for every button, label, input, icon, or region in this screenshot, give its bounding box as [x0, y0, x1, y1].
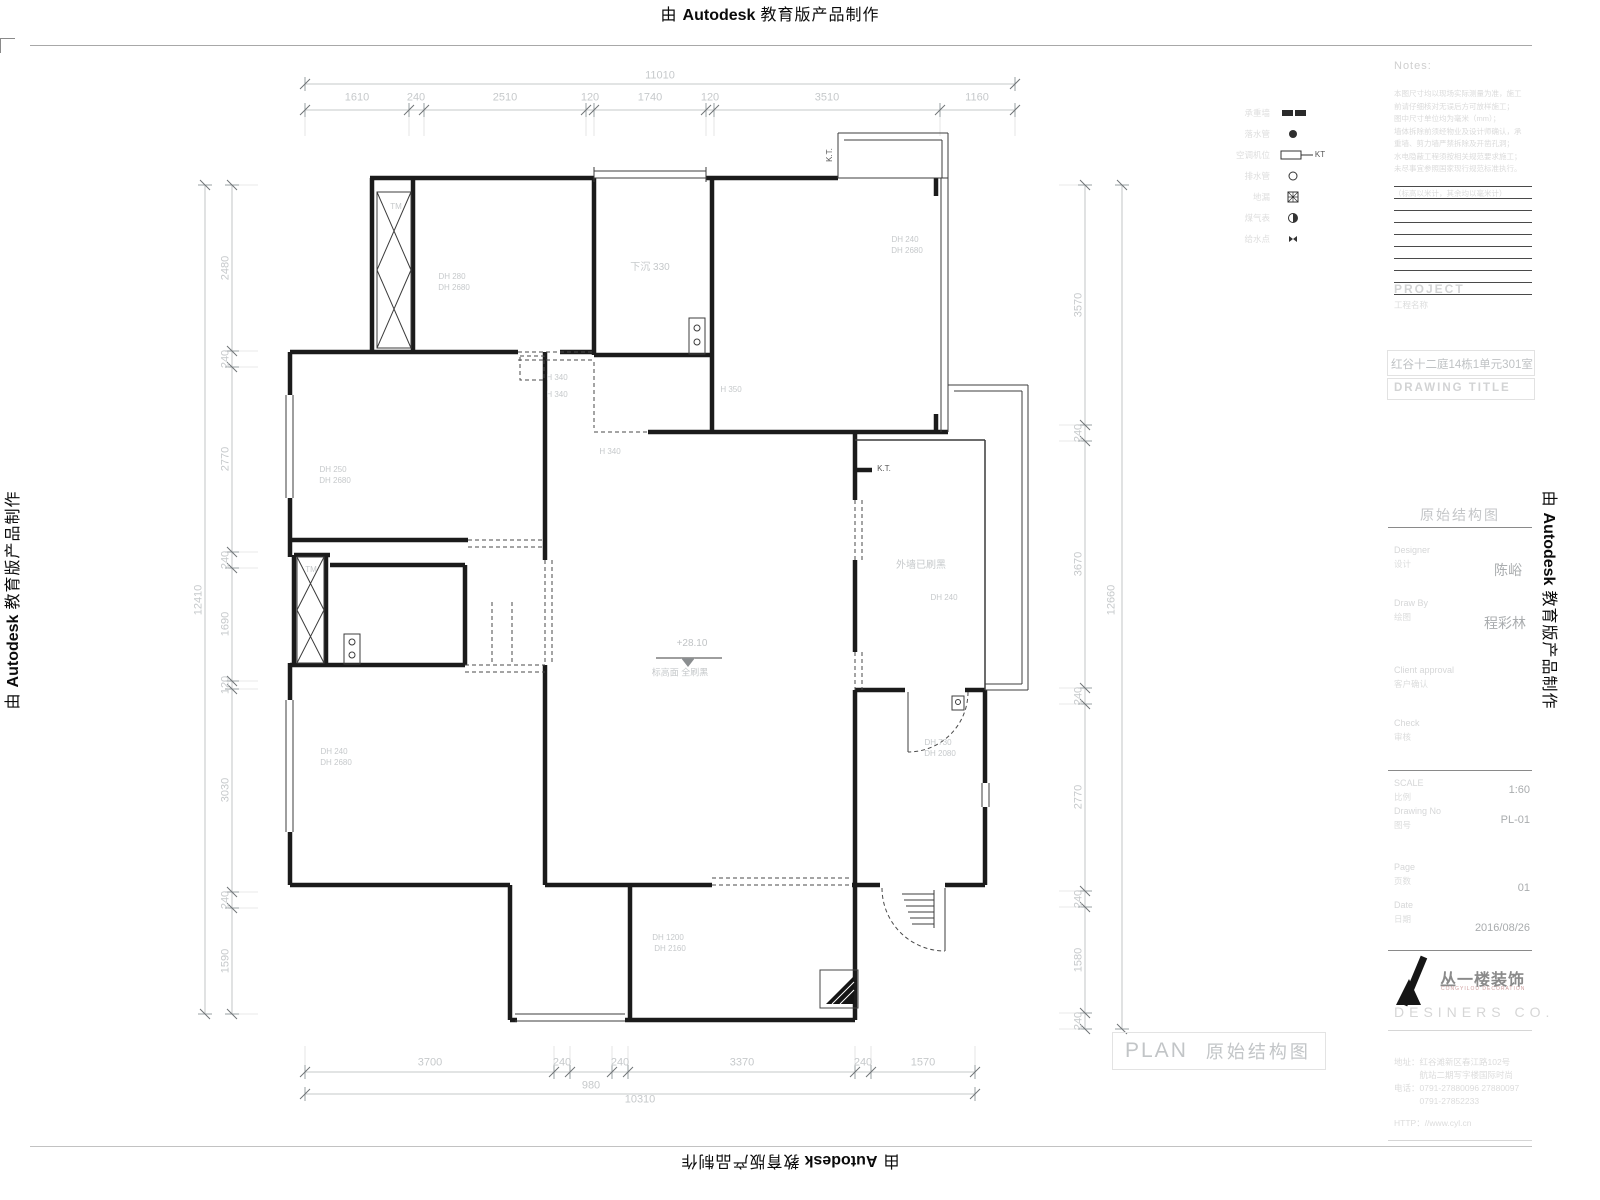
dim-label: 10310: [625, 1095, 656, 1106]
dim-label: 2510: [493, 93, 517, 104]
dim-label-vertical: 2770: [1074, 785, 1085, 809]
walls: [290, 178, 985, 1020]
dim-label: DH 240: [930, 594, 957, 602]
dim-label: DH 730: [924, 739, 951, 747]
legend-label: 煤气表: [1206, 212, 1270, 224]
dim-label: DH 2680: [319, 477, 351, 485]
legend-label: 排水管: [1206, 170, 1270, 182]
legend-row: 煤气表: [1206, 207, 1314, 228]
dim-label-vertical: 1690: [221, 612, 232, 636]
project-label-cn: 工程名称: [1394, 299, 1428, 311]
date-label-cn: 日期: [1394, 913, 1411, 925]
dim-label: H 350: [720, 386, 741, 394]
water-point-icon: [1280, 232, 1310, 246]
dim-label-vertical: 240: [221, 551, 232, 569]
page-value: 01: [1518, 882, 1530, 894]
project-label: PROJECT: [1394, 282, 1465, 296]
date-label: Date: [1394, 900, 1413, 910]
pipe-icon: [349, 639, 355, 645]
pipe-icon: [694, 339, 700, 345]
dim-label: H 340: [546, 391, 567, 399]
dim-label-vertical: 2770: [221, 447, 232, 471]
pipe-icon: [956, 700, 961, 705]
dim-label: 3700: [418, 1058, 442, 1069]
dim-label: 120: [701, 93, 719, 104]
dim-label: DH 1200: [652, 934, 684, 942]
legend-row: 排水管: [1206, 165, 1314, 186]
legend-label: 地漏: [1206, 191, 1270, 203]
drawing-no-label: Drawing No: [1394, 806, 1441, 816]
drainpipe-icon: [1280, 169, 1310, 183]
website-line: HTTP：//www.cyl.cn: [1394, 1117, 1471, 1129]
page-label: Page: [1394, 862, 1415, 872]
drawing-no-value: PL-01: [1501, 814, 1530, 826]
ac-unit-icon: [1280, 148, 1314, 162]
divider: [1388, 1140, 1532, 1141]
dim-label: 3370: [730, 1058, 754, 1069]
address-line: 地址：红谷滩新区春江路102号: [1394, 1056, 1510, 1068]
phone-line: 0791-27852233: [1394, 1095, 1479, 1107]
client-approval-label: Client approval: [1394, 665, 1454, 675]
dim-label-vertical: 12660: [1107, 585, 1118, 616]
floor-plan: [0, 0, 1600, 1200]
dim-label: DH 280: [438, 273, 465, 281]
divider: [1388, 950, 1532, 951]
dim-label: K.T.: [877, 465, 891, 473]
cad-sheet: 由Autodesk教育版产品制作 由Autodesk教育版产品制作 由Autod…: [0, 0, 1600, 1200]
dim-label: DH 250: [319, 466, 346, 474]
shaft-hatch: [297, 192, 411, 663]
plan-label: PLAN: [1125, 1039, 1188, 1063]
designer-label: Designer: [1394, 545, 1430, 555]
legend-row: 地漏: [1206, 186, 1314, 207]
dim-label: DH 2160: [654, 945, 686, 953]
pipe-icon: [349, 652, 355, 658]
level-mark-icon: [681, 658, 695, 667]
legend-label: 承重墙: [1206, 107, 1270, 119]
drawing-title-label: DRAWING TITLE: [1394, 382, 1511, 394]
dim-label: 3510: [815, 93, 839, 104]
scale-label-cn: 比例: [1394, 791, 1411, 803]
legend-label: 给水点: [1206, 233, 1270, 245]
pipe-icon: [694, 325, 700, 331]
dim-label: 下沉 330: [630, 263, 669, 273]
dim-label: 120: [581, 93, 599, 104]
dim-label: DH 2080: [924, 750, 956, 758]
dim-label: DH 2680: [891, 247, 923, 255]
dim-label: +28.10: [677, 639, 708, 649]
project-name: 红谷十二庭14栋1单元301室: [1391, 356, 1533, 372]
dim-label-vertical: 240: [221, 350, 232, 368]
dim-label-vertical: K.T.: [826, 148, 834, 162]
page-label-cn: 页数: [1394, 875, 1411, 887]
plan-title-tag: PLAN 原始结构图: [1112, 1032, 1326, 1070]
legend-row: 空调机位: [1206, 144, 1314, 165]
dim-label: 240: [611, 1058, 629, 1069]
dim-label: DH 240: [320, 748, 347, 756]
designer-name: 陈峪: [1494, 560, 1522, 580]
floor-drain-icon: [1280, 190, 1310, 204]
dim-label: 240: [854, 1058, 872, 1069]
date-value: 2016/08/26: [1475, 922, 1530, 934]
drawby-label: Draw By: [1394, 598, 1428, 608]
bearing-wall-icon: [1280, 106, 1310, 120]
legend-label: 落水管: [1206, 128, 1270, 140]
dim-label-vertical: 3670: [1074, 552, 1085, 576]
divider: [1388, 1030, 1532, 1031]
dim-label: 1160: [965, 93, 989, 104]
designers-co-label: DESINERS CO.: [1394, 1004, 1554, 1020]
check-label-cn: 审核: [1394, 731, 1411, 743]
title-block: PROJECT 工程名称 红谷十二庭14栋1单元301室 DRAWING TIT…: [1386, 0, 1536, 1200]
dim-label-vertical: 3570: [1074, 293, 1085, 317]
dim-label: KT: [1315, 151, 1325, 159]
corner-triangle-icon: [826, 976, 854, 1004]
dim-label-vertical: 12410: [194, 585, 205, 616]
legend-row: 承重墙: [1206, 102, 1314, 123]
dim-label-vertical: 1590: [221, 949, 232, 973]
legend-row: 落水管: [1206, 123, 1314, 144]
dim-label: 外墙已刷黑: [896, 561, 946, 571]
dim-label: 980: [582, 1081, 600, 1092]
dim-label: 240: [553, 1058, 571, 1069]
dim-label-vertical: 240: [1074, 424, 1085, 442]
drawby-label-cn: 绘图: [1394, 611, 1411, 623]
dim-label: 11010: [645, 71, 675, 82]
dim-label-vertical: 120: [221, 676, 232, 694]
check-label: Check: [1394, 718, 1420, 728]
legend-row: 给水点: [1206, 228, 1314, 249]
legend: 承重墙 落水管 空调机位 排水管 地漏 煤气表 给水点: [1206, 102, 1314, 249]
dim-label: 1740: [638, 93, 662, 104]
divider: [1388, 527, 1532, 528]
dim-label-vertical: 240: [1074, 1012, 1085, 1030]
scale-value: 1:60: [1509, 784, 1530, 796]
dim-label-vertical: 240: [1074, 687, 1085, 705]
dim-label: 1570: [911, 1058, 935, 1069]
dim-label: DH 240: [891, 236, 918, 244]
divider: [1388, 770, 1532, 771]
legend-label: 空调机位: [1206, 149, 1270, 161]
dim-label-vertical: 240: [221, 891, 232, 909]
dashed-openings-and-door-arcs: [465, 352, 968, 951]
dim-label: DH 2680: [320, 759, 352, 767]
dim-label-vertical: 1580: [1074, 948, 1085, 972]
dim-label: TM: [305, 566, 317, 574]
address-line: 航站二期写字楼国际时尚: [1394, 1069, 1513, 1081]
dim-label: H 340: [599, 448, 620, 456]
dim-label-vertical: 240: [1074, 890, 1085, 908]
phone-line: 电话：0791-27880096 27880097: [1394, 1082, 1519, 1094]
company-subtitle: CONGYILOU DECORATION: [1441, 986, 1525, 992]
dim-label: H 340: [546, 374, 567, 382]
dim-label: 标高面 全刷黑: [652, 669, 709, 678]
plumbing-fixtures: [344, 318, 964, 710]
drawing-no-label-cn: 图号: [1394, 819, 1411, 831]
dim-label: TM: [390, 203, 402, 211]
plan-title-text: 原始结构图: [1206, 1038, 1311, 1064]
scale-label: SCALE: [1394, 778, 1424, 788]
dim-label-vertical: 3030: [221, 778, 232, 802]
dim-label: 1610: [345, 93, 369, 104]
dim-label: DH 2680: [438, 284, 470, 292]
company-logo-icon: [1394, 955, 1439, 1007]
dim-label-vertical: 2480: [221, 256, 232, 280]
dim-label: 240: [407, 93, 425, 104]
drawing-name: 原始结构图: [1386, 505, 1534, 525]
client-approval-label-cn: 客户确认: [1394, 678, 1428, 690]
downpipe-icon: [1280, 127, 1310, 141]
gas-meter-icon: [1280, 211, 1310, 225]
drawby-name: 程彩林: [1484, 613, 1526, 633]
designer-label-cn: 设计: [1394, 558, 1411, 570]
